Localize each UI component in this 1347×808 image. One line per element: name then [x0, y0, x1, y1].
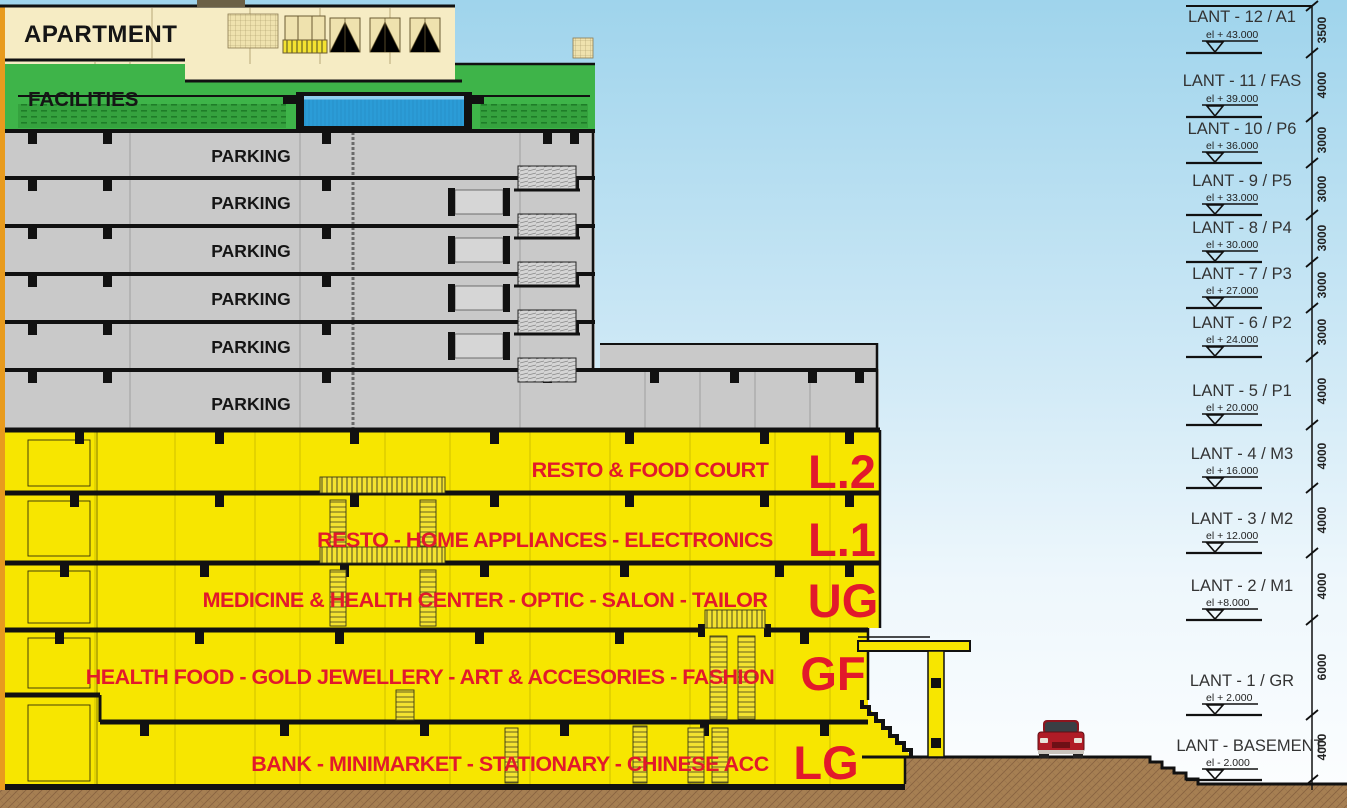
floor-l2-label: RESTO & FOOD COURT — [532, 458, 769, 482]
level-elevation-basement: el - 2.000 — [1206, 757, 1250, 769]
level-elevation-11: el + 39.000 — [1206, 93, 1258, 105]
level-name-6: LANT - 6 / P2 — [1192, 314, 1292, 332]
left-edge-strip — [0, 6, 5, 790]
floor-ug-code: UG — [808, 574, 879, 627]
level-dim-5: 4000 — [1315, 377, 1329, 404]
level-elevation-4: el + 16.000 — [1206, 465, 1258, 477]
level-name-basement: LANT - BASEMENT — [1176, 737, 1323, 755]
level-elevation-3: el + 12.000 — [1206, 530, 1258, 542]
level-dim-4: 4000 — [1315, 442, 1329, 469]
level-dim-10: 3000 — [1315, 126, 1329, 153]
level-elevation-2: el +8.000 — [1206, 597, 1250, 609]
level-elevation-12: el + 43.000 — [1206, 29, 1258, 41]
floor-l2-code: L.2 — [808, 445, 876, 498]
level-elevation-9: el + 33.000 — [1206, 192, 1258, 204]
level-dim-basement: 4000 — [1315, 733, 1329, 760]
floor-lg-label: BANK - MINIMARKET - STATIONARY - CHINESE… — [251, 752, 768, 776]
apartment-label: APARTMENT — [24, 21, 177, 48]
canopy-roof — [858, 641, 970, 651]
level-dim-7: 3000 — [1315, 271, 1329, 298]
floor-ug-label: MEDICINE & HEALTH CENTER - OPTIC - SALON… — [203, 588, 769, 612]
level-elevation-8: el + 30.000 — [1206, 239, 1258, 251]
level-elevation-10: el + 36.000 — [1206, 140, 1258, 152]
roof-lattice — [573, 38, 593, 58]
level-name-2: LANT - 2 / M1 — [1191, 577, 1293, 595]
level-name-7: LANT - 7 / P3 — [1192, 265, 1292, 283]
parking-label-5: PARKING — [211, 337, 290, 357]
level-name-10: LANT - 10 / P6 — [1188, 120, 1297, 138]
level-dim-3: 4000 — [1315, 506, 1329, 533]
floor-lg-code: LG — [793, 736, 858, 789]
parking-label-3: PARKING — [211, 241, 290, 261]
level-dim-2: 4000 — [1315, 572, 1329, 599]
parking-label-4: PARKING — [211, 289, 290, 309]
level-name-3: LANT - 3 / M2 — [1191, 510, 1293, 528]
level-elevation-7: el + 27.000 — [1206, 285, 1258, 297]
facilities-block: FACILITIES — [5, 64, 595, 139]
parking-label-6: PARKING — [211, 394, 290, 414]
level-dim-8: 3000 — [1315, 224, 1329, 251]
parking-label-1: PARKING — [211, 146, 290, 166]
level-dim-6: 3000 — [1315, 318, 1329, 345]
level-name-11: LANT - 11 / FAS — [1183, 72, 1302, 90]
level-dim-9: 3000 — [1315, 175, 1329, 202]
level-elevation-5: el + 20.000 — [1206, 402, 1258, 414]
pool-water — [304, 96, 464, 126]
level-elevation-1: el + 2.000 — [1206, 692, 1253, 704]
level-name-12: LANT - 12 / A1 — [1188, 8, 1296, 26]
level-dim-11: 4000 — [1315, 71, 1329, 98]
level-name-4: LANT - 4 / M3 — [1191, 445, 1293, 463]
balcony-window — [283, 16, 327, 53]
planting-strip-right — [480, 104, 588, 128]
level-dim-12: 3500 — [1315, 16, 1329, 43]
car — [1038, 720, 1084, 758]
facilities-label: FACILITIES — [28, 88, 138, 111]
parking-label-2: PARKING — [211, 193, 290, 213]
floor-l1-code: L.1 — [808, 513, 876, 566]
level-name-1: LANT - 1 / GR — [1190, 672, 1294, 690]
section-drawing-stage: APARTMENT FACILITIES — [0, 0, 1347, 808]
basement-slab — [5, 784, 905, 790]
level-dim-1: 6000 — [1315, 653, 1329, 680]
level-name-9: LANT - 9 / P5 — [1192, 172, 1292, 190]
level-elevation-6: el + 24.000 — [1206, 334, 1258, 346]
floor-l1-label: RESTO - HOME APPLIANCES - ELECTRONICS — [317, 528, 773, 552]
floor-gf-code: GF — [800, 647, 865, 700]
building-section-drawing: APARTMENT FACILITIES — [0, 0, 1347, 808]
level-name-5: LANT - 5 / P1 — [1192, 382, 1292, 400]
level-name-8: LANT - 8 / P4 — [1192, 219, 1292, 237]
lattice-window — [228, 14, 278, 48]
floor-gf-label: HEALTH FOOD - GOLD JEWELLERY - ART & ACC… — [86, 665, 775, 689]
